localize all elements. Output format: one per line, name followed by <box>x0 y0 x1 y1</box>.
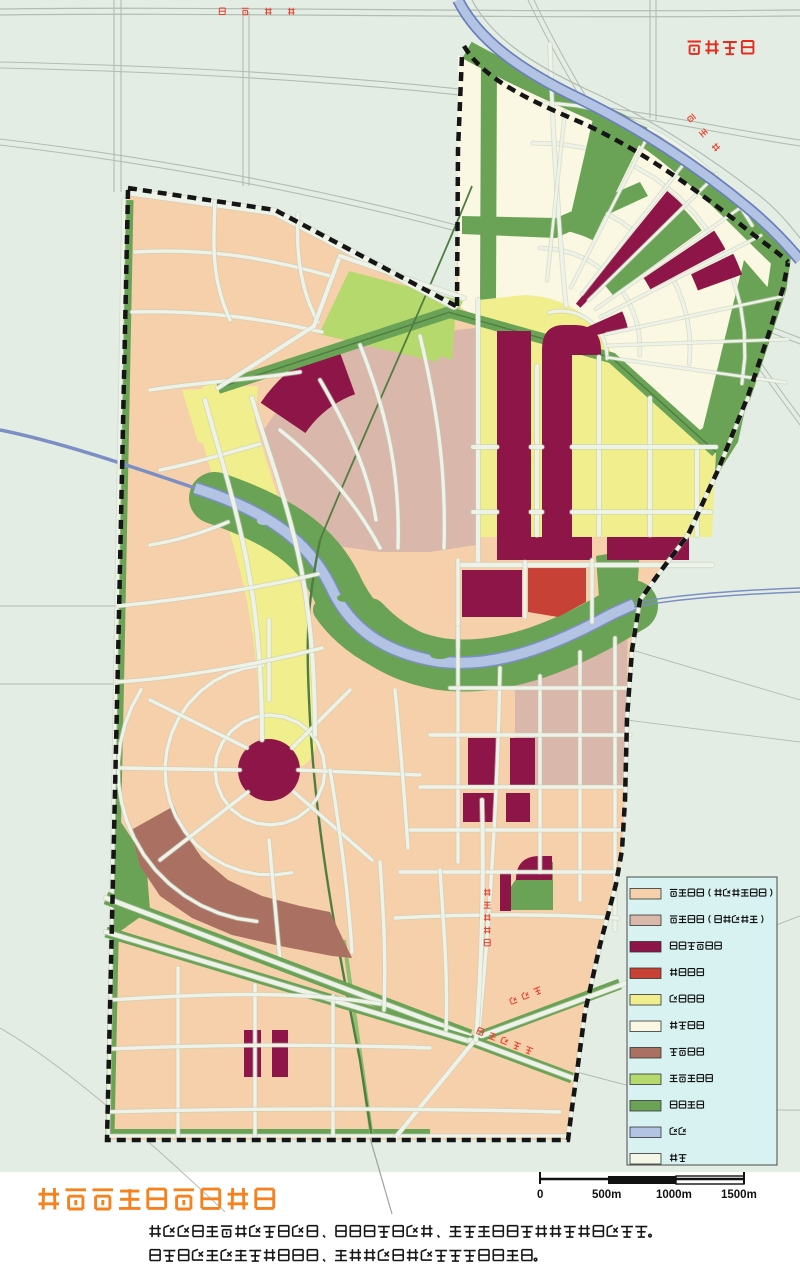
svg-text:1000m: 1000m <box>656 1189 692 1201</box>
svg-text:500m: 500m <box>592 1189 621 1201</box>
svg-text:0: 0 <box>537 1189 543 1201</box>
svg-text:1500m: 1500m <box>721 1189 757 1201</box>
